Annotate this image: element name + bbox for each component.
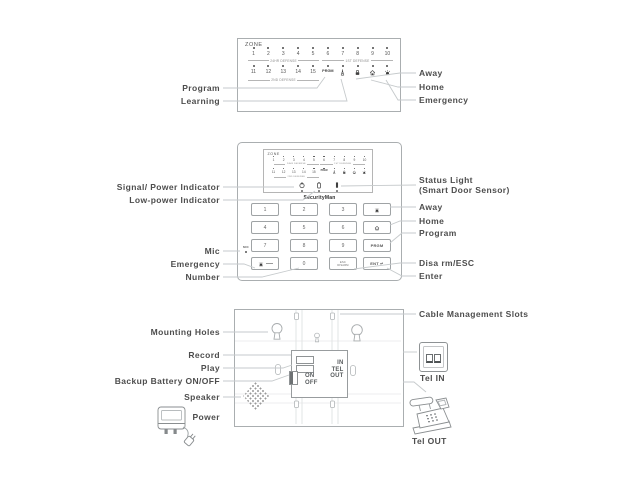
led-dot [334,156,335,157]
away-lock-icon [354,69,361,76]
callout-enter-key: Enter [419,271,443,281]
led-dot [344,168,345,169]
defense-brackets: 24HR DEFENSE 1ST DEFENSE [274,163,365,165]
zone-cell: 1 [270,156,277,162]
callout-home: Home [419,82,444,92]
callout-power: Power [192,412,220,422]
key-2: 2 [290,203,318,216]
top-zone-indicator-panel: ZONE 12345678910 24HR DEFENSE 1ST DEFENS… [237,38,401,112]
zone-cell: 13 [278,65,289,76]
led-dot [283,168,284,169]
tel-in-jack-icon [419,342,448,372]
led-dot [273,168,274,169]
mic-hole-icon [245,251,247,253]
zone-row-1: 12345678910 [248,47,393,57]
led-dot [312,65,314,67]
zone-cell: 14 [300,168,307,175]
zone-row-2: 1112131415 PRGM [270,168,368,175]
callout-emergency-key: Emergency [171,259,220,269]
zone-cell: 5 [308,47,319,57]
play-button [296,365,314,373]
led-dot [297,65,299,67]
emergency-siren-icon [258,261,264,267]
away-lock-icon [342,170,347,175]
emergency-siren-icon [362,170,367,175]
led-dot [303,156,304,157]
key-7: 7 [251,239,279,252]
zone-cell: 8 [352,47,363,57]
led-dot [313,168,314,169]
led-dot [386,47,388,49]
recessed-control-box: ON OFF IN TEL OUT [291,350,348,398]
zone-cell: 9 [367,47,378,57]
callout-speaker: Speaker [184,392,220,402]
callout-mounting-holes: Mounting Holes [151,327,220,337]
callout-learning: Learning [181,96,220,106]
zone-cell: 12 [263,65,274,76]
led-dot [357,47,359,49]
callout-home-key: Home [419,216,444,226]
home-house-icon [369,69,376,76]
led-dot [334,168,335,169]
led-dot [364,168,365,169]
zone-cell: 7 [331,156,338,162]
key-enter: ENT ↵ [363,257,391,270]
zone-cell: 2 [263,47,274,57]
speaker-grille-icon [243,381,269,411]
led-dot [354,156,355,157]
callout-program-key: Program [419,228,457,238]
zone-cell: 7 [337,47,348,57]
zone-cell: 14 [293,65,304,76]
zone-cell: 6 [322,47,333,57]
zone-row-2: 1112131415 PRGM [248,65,393,76]
led-dot [327,65,329,67]
zone-cell: 3 [278,47,289,57]
tel-port-labels: IN TEL OUT [330,360,343,380]
led-dot [372,47,374,49]
led-dot [342,47,344,49]
callout-mic: Mic [205,246,220,256]
callout-tel-in: Tel IN [414,373,451,383]
key-home [363,221,391,234]
brand-logo-text: SecurityMan [238,195,401,201]
status-light-icon [333,181,341,189]
led-dot [357,65,359,67]
callout-emergency: Emergency [419,95,468,105]
led-dot [323,156,324,157]
callout-away-key: Away [419,202,443,212]
key-disarm-esc: ESCDISARM [329,257,357,270]
led-dot [364,156,365,157]
home-house-icon [352,170,357,175]
led-dot [372,65,374,67]
key-5: 5 [290,221,318,234]
zone-cell: 9 [351,156,358,162]
defense-brackets: 24HR DEFENSE 1ST DEFENSE [248,59,393,63]
product-diagram-canvas: ZONE 12345678910 24HR DEFENSE 1ST DEFENS… [0,0,640,480]
zone-cell: 10 [382,47,393,57]
zone-cell: 8 [341,156,348,162]
prgm-indicator: PRGM [322,65,333,76]
zone-cell: 13 [290,168,297,175]
key-3: 3 [329,203,357,216]
led-dot [253,47,255,49]
bracket-2nd-defense: 2ND DEFENSE [248,78,319,82]
zone-cell: 5 [310,156,317,162]
callout-play: Play [201,363,220,373]
zone-cell: 4 [300,156,307,162]
low-power-indicator [314,181,324,192]
home-house-icon [374,225,380,231]
away-siren-icon [374,207,380,213]
power-adapter-icon [158,407,197,446]
led-dot [282,65,284,67]
key-6: 6 [329,221,357,234]
home-indicator [367,65,378,76]
led-dot [297,47,299,49]
callout-away: Away [419,68,443,78]
led-dot [273,156,274,157]
key-4: 4 [251,221,279,234]
learning-antenna-icon [339,69,346,76]
zone-cell: 11 [248,65,259,76]
led-dot [293,168,294,169]
key-0: 0 [290,257,318,270]
key-program: PRGM [363,239,391,252]
record-button [296,356,314,364]
zone-row-1: 12345678910 [270,156,368,162]
zone-cell: 15 [310,168,317,175]
zone-cell: 11 [270,168,277,175]
led-dot [283,156,284,157]
led-dot [342,65,344,67]
led-dot [303,168,304,169]
callout-signal-power-indicator: Signal/ Power Indicator [117,182,220,192]
led-dot [293,156,294,157]
callout-program: Program [182,83,220,93]
callout-cable-management: Cable Management Slots [419,309,528,319]
bracket-24hr-defense: 24HR DEFENSE [248,59,319,63]
key-away [363,203,391,216]
switch-labels: ON OFF [305,373,318,386]
bracket-1st-defense: 1ST DEFENSE [322,59,393,63]
zone-cell: 2 [280,156,287,162]
zone-cell: 4 [293,47,304,57]
key-text-mark [266,263,273,264]
back-panel: ON OFF IN TEL OUT [234,309,404,427]
led-dot [327,47,329,49]
key-8: 8 [290,239,318,252]
led-dot [253,65,255,67]
backup-battery-switch [289,371,298,385]
mic: MIC [241,245,251,253]
zone-cell: 12 [280,168,287,175]
zone-cell: 6 [321,156,328,162]
callout-record: Record [188,350,220,360]
callout-status-light: Status Light (Smart Door Sensor) [419,176,510,195]
led-dot [386,65,388,67]
zone-cell: 15 [308,65,319,76]
power-symbol-icon [298,181,306,189]
keypad-panel: ZONE 12345678910 24HR DEFENSE 1ST DEFENS… [237,142,402,281]
learning-antenna-icon [332,170,337,175]
tel-out-phone-icon [410,397,451,434]
signal-power-indicator [297,181,307,192]
led-dot [323,168,324,169]
emergency-siren-icon [384,69,391,76]
callout-number-keys: Number [185,272,220,282]
rj11-port-icon [434,354,441,363]
key-9: 9 [329,239,357,252]
zone-cell: 10 [361,156,368,162]
led-dot [313,156,314,157]
callout-backup-battery: Backup Battery ON/OFF [115,376,220,386]
emergency-indicator [382,65,393,76]
zone-cell: 1 [248,47,259,57]
key-emergency [251,257,279,270]
led-dot [354,168,355,169]
led-dot [267,65,269,67]
learning-indicator [337,65,348,76]
zone-cell: 3 [290,156,297,162]
status-light-indicator [332,181,342,192]
led-dot [344,156,345,157]
key-1: 1 [251,203,279,216]
callout-tel-out: Tel OUT [412,436,447,446]
away-indicator [352,65,363,76]
defense-bracket-2nd: 2ND DEFENSE [248,78,393,82]
led-dot [267,47,269,49]
battery-icon [315,181,323,189]
rj11-port-icon [426,354,433,363]
callout-disarm-esc: Disa rm/ESC [419,258,474,268]
led-dot [312,47,314,49]
led-dot [282,47,284,49]
callout-low-power-indicator: Low-power Indicator [129,195,220,205]
zone-label: ZONE [268,152,280,156]
